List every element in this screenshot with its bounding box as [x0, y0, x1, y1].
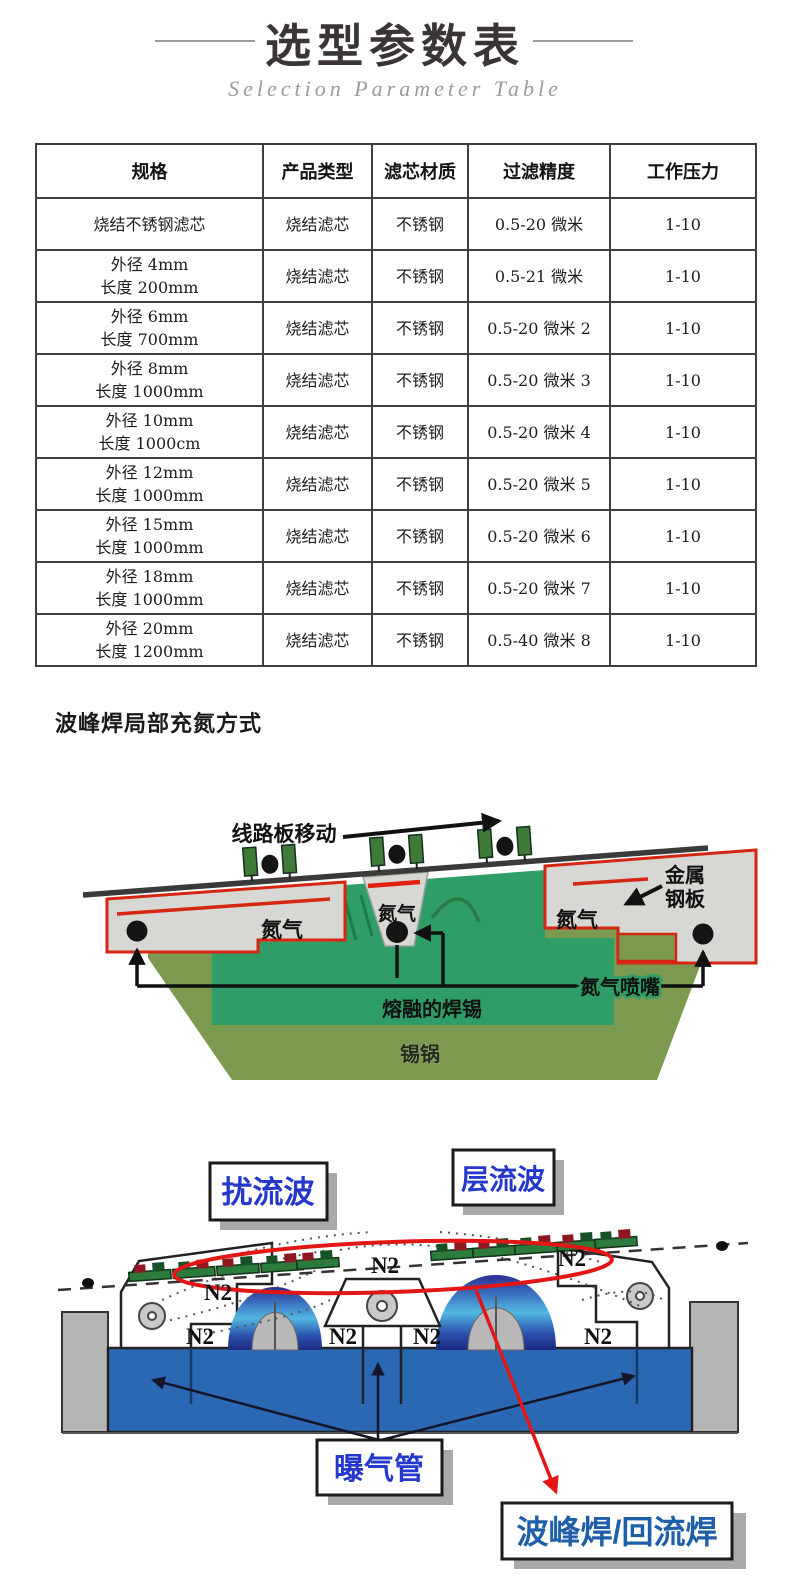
title-rule-right — [533, 40, 633, 42]
cell-spec: 外径 12mm — [37, 461, 262, 484]
cell-material: 不锈钢 — [372, 250, 468, 302]
col-header-type: 产品类型 — [263, 144, 372, 198]
conveyor-end-left — [82, 1278, 94, 1288]
cell-type: 烧结滤芯 — [263, 614, 372, 666]
cell-material: 不锈钢 — [372, 354, 468, 406]
wave-reflow-label: 波峰焊/回流焊 — [517, 1514, 718, 1550]
table-row: 外径 8mm长度 1000mm 烧结滤芯 不锈钢 0.5-20 微米 3 1-1… — [36, 354, 756, 406]
table-row: 外径 15mm长度 1000mm 烧结滤芯 不锈钢 0.5-20 微米 6 1-… — [36, 510, 756, 562]
turbulent-wave-label: 扰流波 — [222, 1175, 315, 1210]
laminar-wave-callout: 层流波 — [453, 1150, 564, 1215]
nitrogen-nozzle-label: 氮气喷嘴 — [580, 975, 660, 999]
nozzle-circle-left — [127, 921, 148, 942]
cell-type: 烧结滤芯 — [263, 562, 372, 614]
wave-reflow-callout: 波峰焊/回流焊 — [502, 1503, 746, 1569]
cell-material: 不锈钢 — [372, 458, 468, 510]
cell-precision: 0.5-20 微米 4 — [468, 406, 610, 458]
table-row: 外径 12mm长度 1000mm 烧结滤芯 不锈钢 0.5-20 微米 5 1-… — [36, 458, 756, 510]
n2-label: N2 — [329, 1324, 357, 1349]
table-row: 烧结不锈钢滤芯 烧结滤芯 不锈钢 0.5-20 微米 1-10 — [36, 198, 756, 250]
table-row: 外径 18mm长度 1000mm 烧结滤芯 不锈钢 0.5-20 微米 7 1-… — [36, 562, 756, 614]
cell-type: 烧结滤芯 — [263, 406, 372, 458]
cell-precision: 0.5-20 微米 7 — [468, 562, 610, 614]
table-row: 外径 20mm长度 1200mm 烧结滤芯 不锈钢 0.5-40 微米 8 1-… — [36, 614, 756, 666]
n2-label: N2 — [413, 1324, 441, 1349]
nitrogen-label-center: 氮气 — [378, 902, 416, 925]
molten-solder-label: 熔融的焊锡 — [382, 997, 482, 1021]
cell-precision: 0.5-21 微米 — [468, 250, 610, 302]
cell-precision: 0.5-20 微米 5 — [468, 458, 610, 510]
cell-spec: 外径 4mm — [37, 253, 262, 276]
pillar-left — [62, 1312, 108, 1432]
cell-type: 烧结滤芯 — [263, 302, 372, 354]
n2-label: N2 — [204, 1280, 232, 1305]
n2-label: N2 — [584, 1324, 612, 1349]
roller-center-hub — [377, 1301, 387, 1311]
cell-pressure: 1-10 — [610, 406, 756, 458]
n2-label: N2 — [371, 1253, 399, 1278]
aeration-pipe-callout: 曝气管 — [317, 1440, 453, 1505]
turbulent-wave-callout: 扰流波 — [210, 1163, 337, 1230]
cell-precision: 0.5-40 微米 8 — [468, 614, 610, 666]
cell-pressure: 1-10 — [610, 562, 756, 614]
cell-material: 不锈钢 — [372, 614, 468, 666]
cell-spec: 外径 6mm — [37, 305, 262, 328]
cell-pressure: 1-10 — [610, 510, 756, 562]
cell-spec: 外径 18mm — [37, 565, 262, 588]
cell-material: 不锈钢 — [372, 562, 468, 614]
cell-type: 烧结滤芯 — [263, 198, 372, 250]
col-header-material: 滤芯材质 — [372, 144, 468, 198]
conveyor-end-right — [716, 1241, 728, 1251]
wave-machine-diagram: N2 N2 N2 N2 N2 N2 N2 扰流波 层流波 曝气管 — [0, 1130, 790, 1584]
nozzle-circle-right — [693, 924, 714, 945]
cell-pressure: 1-10 — [610, 614, 756, 666]
n2-label: N2 — [186, 1324, 214, 1349]
title-rule-left — [155, 40, 255, 42]
cell-type: 烧结滤芯 — [263, 458, 372, 510]
board-move-label: 线路板移动 — [232, 822, 337, 846]
page-title: 选型参数表 — [0, 10, 790, 76]
aeration-pipe-label: 曝气管 — [334, 1453, 424, 1486]
cell-type: 烧结滤芯 — [263, 354, 372, 406]
roller-right-hub — [636, 1292, 644, 1300]
cell-pressure: 1-10 — [610, 458, 756, 510]
cell-pressure: 1-10 — [610, 250, 756, 302]
metal-plate-label-line1: 金属 — [664, 863, 705, 887]
page-subtitle: Selection Parameter Table — [0, 76, 790, 102]
tin-pot-label: 锡锅 — [400, 1042, 440, 1066]
section-heading: 波峰焊局部充氮方式 — [55, 706, 262, 738]
cell-material: 不锈钢 — [372, 198, 468, 250]
cell-precision: 0.5-20 微米 3 — [468, 354, 610, 406]
cell-spec: 外径 20mm — [37, 617, 262, 640]
cell-precision: 0.5-20 微米 — [468, 198, 610, 250]
table-header-row: 规格 产品类型 滤芯材质 过滤精度 工作压力 — [36, 144, 756, 198]
table-row: 外径 4mm长度 200mm 烧结滤芯 不锈钢 0.5-21 微米 1-10 — [36, 250, 756, 302]
nitrogen-label-right: 氮气 — [556, 908, 598, 932]
cell-pressure: 1-10 — [610, 354, 756, 406]
cell-type: 烧结滤芯 — [263, 250, 372, 302]
table-row: 外径 6mm长度 700mm 烧结滤芯 不锈钢 0.5-20 微米 2 1-10 — [36, 302, 756, 354]
cell-spec: 外径 8mm — [37, 357, 262, 380]
wave-solder-nitrogen-diagram: 线路板移动 金属 钢板 氮气 氮气 氮气 氮气喷嘴 熔融的焊锡 锡锅 — [0, 770, 790, 1100]
n2-label: N2 — [558, 1246, 586, 1271]
col-header-precision: 过滤精度 — [468, 144, 610, 198]
nitrogen-label-left: 氮气 — [261, 918, 303, 942]
pillar-right — [690, 1302, 738, 1432]
cell-precision: 0.5-20 微米 6 — [468, 510, 610, 562]
cell-precision: 0.5-20 微米 2 — [468, 302, 610, 354]
laminar-wave-label: 层流波 — [461, 1164, 546, 1195]
page: 选型参数表 Selection Parameter Table 规格 产品类型 … — [0, 0, 790, 1584]
pot-step-right — [618, 934, 676, 961]
cell-pressure: 1-10 — [610, 198, 756, 250]
selection-parameter-table: 规格 产品类型 滤芯材质 过滤精度 工作压力 烧结不锈钢滤芯 烧结滤芯 不锈钢 … — [35, 143, 757, 667]
col-header-pressure: 工作压力 — [610, 144, 756, 198]
cell-spec: 外径 10mm — [37, 409, 262, 432]
cell-pressure: 1-10 — [610, 302, 756, 354]
cell-material: 不锈钢 — [372, 510, 468, 562]
cell-material: 不锈钢 — [372, 406, 468, 458]
roller-left-hub — [148, 1312, 156, 1320]
cell-spec: 烧结不锈钢滤芯 — [37, 213, 262, 236]
cell-material: 不锈钢 — [372, 302, 468, 354]
cell-type: 烧结滤芯 — [263, 510, 372, 562]
cell-spec: 外径 15mm — [37, 513, 262, 536]
metal-plate-label-line2: 钢板 — [665, 887, 706, 911]
col-header-spec: 规格 — [36, 144, 263, 198]
table-row: 外径 10mm长度 1000cm 烧结滤芯 不锈钢 0.5-20 微米 4 1-… — [36, 406, 756, 458]
